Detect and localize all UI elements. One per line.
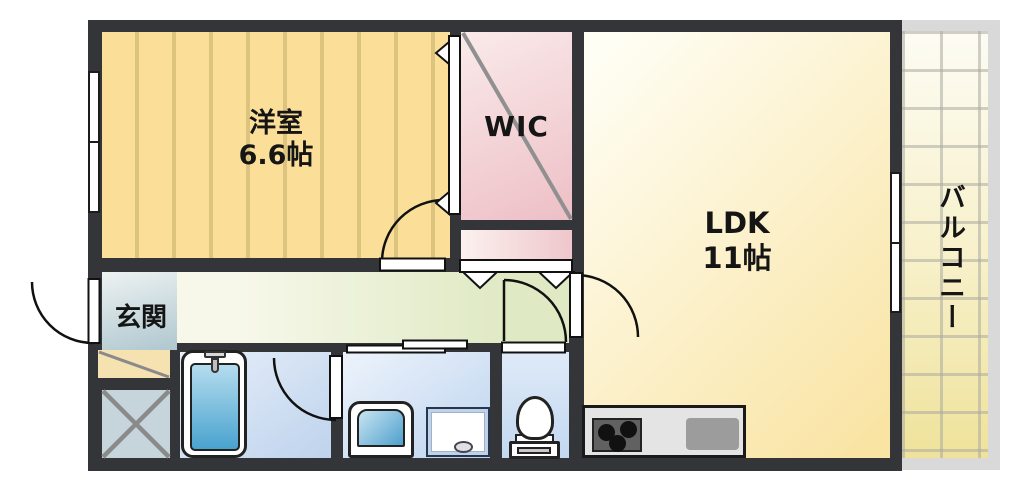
ldk-label: LDK 11帖: [584, 206, 890, 276]
washing-machine-pan: [426, 407, 490, 457]
kitchen-counter: [582, 405, 746, 458]
shoebox-diagonal-mark: [99, 352, 169, 377]
stove-icon: [592, 418, 642, 452]
ldk-door-leaf: [570, 273, 582, 337]
ldk-balcony-window: [890, 172, 901, 313]
bathtub-basin: [190, 363, 240, 451]
closet-folding-door: [460, 260, 572, 272]
western-room-door-leaf: [380, 259, 445, 271]
western-room-door-arc: [382, 200, 444, 262]
window-mullion: [892, 242, 899, 244]
toilet-tank-lid: [517, 447, 551, 454]
burner-icon: [609, 435, 626, 452]
room-size: 11帖: [584, 241, 890, 276]
room-name: 洋室: [102, 108, 450, 140]
entrance-label: 玄関: [102, 303, 180, 334]
toilet-tank: [509, 441, 560, 459]
washbasin: [348, 401, 414, 458]
faucet-icon: [204, 351, 226, 358]
balcony-label: バルコニー: [925, 158, 965, 358]
bathroom-door-arc: [274, 358, 336, 420]
entrance-door-arc: [32, 282, 93, 343]
room-name: LDK: [584, 206, 890, 241]
closet-folding-door-arrow: [463, 272, 497, 288]
floorplan: 洋室 6.6帖 WIC LDK 11帖 玄関 バルコニー: [0, 0, 1022, 492]
closet-folding-door-arrow: [539, 272, 573, 288]
western-room-label: 洋室 6.6帖: [102, 108, 450, 173]
room-name: 玄関: [102, 303, 180, 334]
toilet-icon: [516, 396, 554, 440]
wic-folding-door: [449, 36, 460, 214]
washroom-sliding-door: [403, 341, 467, 349]
window-mullion: [90, 141, 98, 143]
wic-folding-door-arrow: [436, 42, 449, 64]
wic-label: WIC: [461, 110, 572, 144]
room-name: WIC: [461, 110, 572, 144]
toilet-door-arc: [504, 280, 566, 342]
bathroom-door-leaf: [330, 356, 342, 418]
kitchen-sink: [686, 418, 739, 450]
ldk-door-arc: [576, 275, 638, 337]
wic-folding-door-arrow: [436, 192, 449, 214]
washbasin-bowl: [357, 409, 405, 447]
room-name: バルコニー: [933, 158, 965, 358]
western-room-window: [88, 71, 100, 213]
burner-icon: [620, 421, 637, 438]
room-size: 6.6帖: [102, 140, 450, 172]
faucet-icon: [211, 358, 219, 373]
drain-icon: [454, 441, 473, 453]
toilet-door-leaf: [502, 343, 565, 353]
entrance-door-leaf: [89, 279, 100, 343]
